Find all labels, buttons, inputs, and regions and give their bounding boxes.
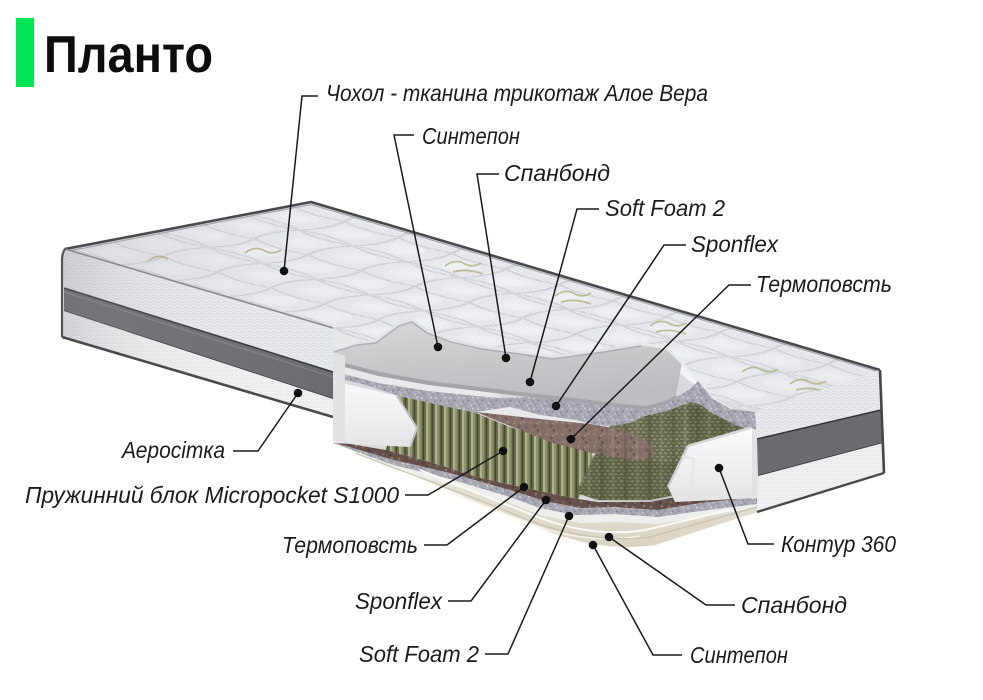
svg-text:Пружинний блок Micropocket S10: Пружинний блок Micropocket S1000 — [25, 482, 399, 508]
svg-text:Sponflex: Sponflex — [355, 588, 443, 614]
svg-text:Аеросітка: Аеросітка — [120, 437, 225, 463]
svg-text:Синтепон: Синтепон — [690, 642, 788, 668]
svg-text:Синтепон: Синтепон — [422, 123, 520, 149]
svg-text:Термоповсть: Термоповсть — [756, 271, 892, 297]
svg-text:Soft Foam 2: Soft Foam 2 — [359, 641, 479, 667]
svg-text:Планто: Планто — [44, 26, 213, 84]
svg-text:Soft Foam 2: Soft Foam 2 — [605, 195, 725, 221]
svg-text:Термоповсть: Термоповсть — [282, 532, 418, 558]
svg-text:Спанбонд: Спанбонд — [504, 160, 610, 186]
svg-text:Чохол - тканина трикотаж Алое: Чохол - тканина трикотаж Алое Вера — [326, 80, 708, 106]
svg-text:Спанбонд: Спанбонд — [741, 592, 847, 618]
svg-text:Контур 360: Контур 360 — [781, 531, 896, 557]
svg-text:Sponflex: Sponflex — [691, 231, 779, 257]
